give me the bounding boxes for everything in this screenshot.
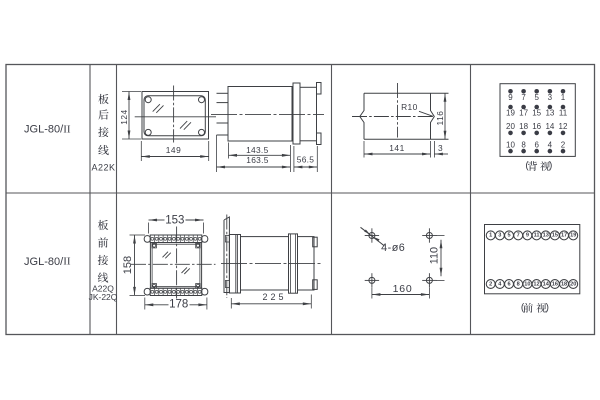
svg-text:12: 12: [533, 282, 539, 288]
svg-text:7: 7: [517, 233, 520, 239]
svg-text:2: 2: [561, 140, 566, 149]
svg-text:10: 10: [524, 282, 530, 288]
svg-text:R10: R10: [401, 102, 418, 112]
svg-text:4: 4: [498, 282, 502, 288]
svg-text:16: 16: [552, 282, 558, 288]
svg-text:2: 2: [489, 282, 492, 288]
svg-text:178: 178: [169, 298, 188, 310]
svg-text:20: 20: [570, 282, 576, 288]
svg-text:19: 19: [570, 233, 576, 239]
svg-text:): ): [549, 161, 552, 172]
svg-text:1: 1: [489, 233, 492, 239]
svg-text:143.5: 143.5: [246, 145, 269, 155]
svg-text:3: 3: [548, 93, 553, 102]
svg-text:124: 124: [119, 109, 129, 124]
svg-text:4-ø6: 4-ø6: [381, 242, 405, 254]
svg-text:JK-22Q: JK-22Q: [89, 292, 118, 302]
svg-text:20: 20: [506, 122, 515, 131]
svg-text:14: 14: [543, 282, 550, 288]
svg-text:3: 3: [438, 143, 443, 153]
svg-text:13: 13: [545, 109, 554, 118]
svg-text:4: 4: [548, 140, 553, 149]
svg-text:15: 15: [532, 109, 541, 118]
svg-text:19: 19: [506, 109, 515, 118]
svg-text:18: 18: [561, 282, 567, 288]
svg-text:II: II: [63, 123, 71, 135]
svg-text:1: 1: [561, 93, 566, 102]
svg-text:163.5: 163.5: [246, 155, 269, 165]
svg-text:225: 225: [262, 292, 286, 302]
svg-text:17: 17: [561, 233, 567, 239]
svg-text:13: 13: [543, 233, 549, 239]
svg-text:116: 116: [435, 111, 445, 126]
svg-text:141: 141: [389, 143, 404, 153]
svg-text:7: 7: [521, 93, 526, 102]
svg-text:110: 110: [428, 247, 440, 264]
svg-text:160: 160: [393, 283, 413, 295]
svg-text:9: 9: [508, 93, 513, 102]
svg-text:A22K: A22K: [91, 162, 115, 172]
svg-text:11: 11: [534, 233, 540, 239]
svg-text:JGL-80/: JGL-80/: [24, 124, 64, 136]
svg-text:15: 15: [552, 233, 558, 239]
svg-text:5: 5: [534, 93, 539, 102]
svg-text:56.5: 56.5: [297, 155, 315, 165]
svg-text:14: 14: [545, 122, 554, 131]
svg-text:(: (: [525, 161, 529, 172]
svg-text:8: 8: [521, 140, 526, 149]
svg-text:17: 17: [519, 109, 528, 118]
svg-text:18: 18: [519, 122, 528, 131]
svg-text:12: 12: [559, 122, 568, 131]
svg-text:158: 158: [122, 256, 134, 274]
svg-text:11: 11: [559, 109, 568, 118]
svg-text:): ): [546, 302, 549, 313]
svg-text:6: 6: [534, 140, 539, 149]
svg-text:149: 149: [166, 145, 181, 155]
svg-text:10: 10: [506, 140, 515, 149]
svg-text:JGL-80/: JGL-80/: [24, 256, 64, 268]
svg-text:16: 16: [532, 122, 541, 131]
svg-text:8: 8: [517, 282, 520, 288]
svg-text:153: 153: [165, 214, 184, 226]
svg-text:5: 5: [507, 233, 510, 239]
svg-text:6: 6: [507, 282, 510, 288]
svg-text:3: 3: [498, 233, 501, 239]
svg-text:9: 9: [526, 233, 529, 239]
svg-text:II: II: [63, 256, 71, 268]
